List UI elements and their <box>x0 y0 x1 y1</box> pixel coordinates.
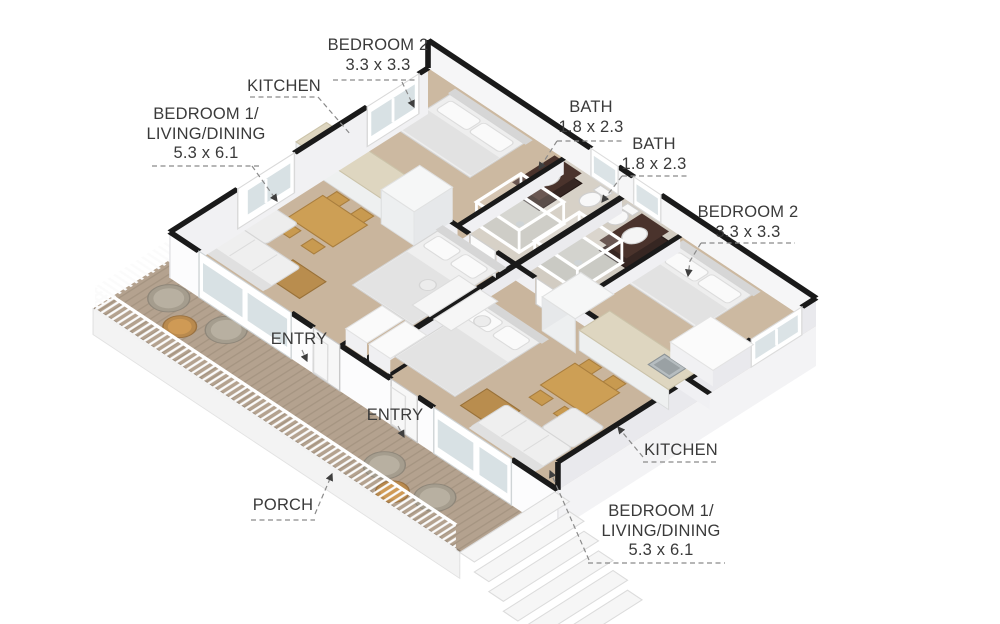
room-title: ENTRY <box>367 406 424 426</box>
label-entry-a: ENTRY <box>271 330 328 350</box>
room-title: BEDROOM 2 <box>698 203 799 223</box>
label-bedroom1-b: BEDROOM 1/ LIVING/DINING 5.3 x 6.1 <box>601 502 720 561</box>
room-title: BEDROOM 1/ <box>146 105 265 125</box>
label-kitchen-a: KITCHEN <box>247 77 321 97</box>
room-title: BATH <box>558 98 623 118</box>
label-bedroom2-a: BEDROOM 2 3.3 x 3.3 <box>328 36 429 75</box>
room-title: KITCHEN <box>644 441 718 461</box>
room-title: KITCHEN <box>247 77 321 97</box>
label-leaders <box>0 0 1000 624</box>
leader-kitchen-b <box>618 427 643 457</box>
floorplan-canvas: BEDROOM 2 3.3 x 3.3 KITCHEN BEDROOM 1/ L… <box>0 0 1000 624</box>
leader-bedroom1-a <box>252 166 277 201</box>
label-bedroom2-b: BEDROOM 2 3.3 x 3.3 <box>698 203 799 242</box>
label-kitchen-b: KITCHEN <box>644 441 718 461</box>
leader-entry-a <box>302 350 307 361</box>
room-dims: 3.3 x 3.3 <box>698 223 799 243</box>
room-title: LIVING/DINING <box>601 522 720 542</box>
room-title: BEDROOM 1/ <box>601 502 720 522</box>
room-title: BATH <box>621 135 686 155</box>
room-dims: 1.8 x 2.3 <box>558 118 623 138</box>
room-title: LIVING/DINING <box>146 125 265 145</box>
room-dims: 1.8 x 2.3 <box>621 155 686 175</box>
leader-porch <box>315 474 332 514</box>
label-bath-b: BATH 1.8 x 2.3 <box>621 135 686 174</box>
leader-bath-a <box>539 141 557 169</box>
label-entry-b: ENTRY <box>367 406 424 426</box>
leader-bedroom2-b <box>688 243 701 276</box>
leader-bedroom2-a <box>402 82 414 107</box>
room-title: PORCH <box>253 496 314 516</box>
leader-entry-b <box>398 426 404 437</box>
room-title: BEDROOM 2 <box>328 36 429 56</box>
room-title: ENTRY <box>271 330 328 350</box>
leader-kitchen-a <box>318 97 351 135</box>
room-dims: 5.3 x 6.1 <box>146 144 265 164</box>
leader-bedroom1-b <box>550 471 589 560</box>
room-dims: 3.3 x 3.3 <box>328 56 429 76</box>
leader-bath-b <box>602 176 622 202</box>
label-porch: PORCH <box>253 496 314 516</box>
label-bedroom1-a: BEDROOM 1/ LIVING/DINING 5.3 x 6.1 <box>146 105 265 164</box>
label-bath-a: BATH 1.8 x 2.3 <box>558 98 623 137</box>
room-dims: 5.3 x 6.1 <box>601 541 720 561</box>
